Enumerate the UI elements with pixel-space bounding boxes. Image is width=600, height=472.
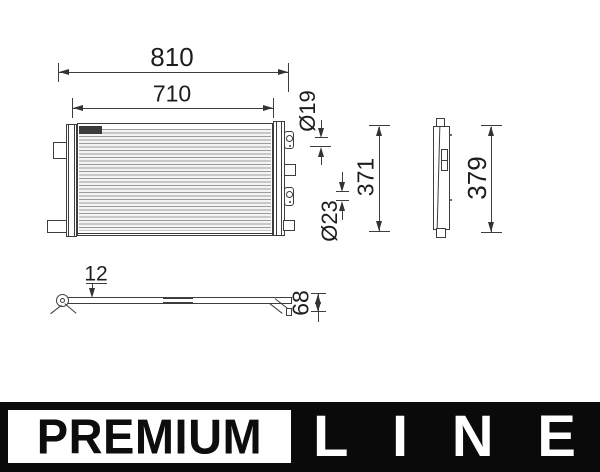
dim-810-label: 810 [150,44,193,70]
arrow-left-icon [73,105,83,111]
line-letter-l: L [313,408,348,466]
bracket-middle [284,164,296,176]
core-fin-hatching [79,129,271,231]
top-view-bar-segment [163,298,193,303]
dim-379-tick-bottom [481,232,502,233]
dim-810-line [59,72,288,73]
line-letter-n: N [452,408,494,466]
left-bracket-diagonal-a [50,305,62,314]
premium-logo-box: PREMIUM [8,410,291,463]
dim-12-underline [86,283,107,284]
side-bracket-midline [442,160,447,161]
dim-810-ext-right [288,63,289,92]
dim-371-line [379,127,380,231]
dim-68-tick-top [311,293,326,294]
dim-19-tick-top [315,137,328,138]
dim-19-label: Ø19 [297,90,319,132]
tank-inner-line-left [276,122,277,235]
port-hole-top [286,135,293,142]
arrow-right-icon [263,105,273,111]
side-pin-bottom [450,199,452,201]
drier-inner-line-right [74,125,75,236]
premium-line-logo: PREMIUM L I N E [0,402,600,472]
part-label-block [79,126,102,134]
dim-379-line [491,127,492,232]
dim-810-ext-left [58,63,59,82]
dim-710-line [73,108,273,109]
dim-19-line-bottom [321,155,322,165]
line-logo-box: L I N E [300,402,600,472]
line-letter-i: I [392,408,408,466]
arrow-up-icon [488,126,494,136]
side-pin-top [450,134,452,136]
technical-drawing-page: 810 710 [0,0,600,472]
arrow-down-icon [89,288,95,298]
mount-tab-bottom-left [47,220,67,233]
dim-12-label: 12 [84,264,107,285]
side-tab-bottom [436,228,446,238]
arrow-left-icon [59,69,69,75]
dim-371-tick-bottom [369,231,390,232]
dim-379-tick-top [481,125,502,126]
dim-23-line-bottom [342,209,343,220]
dim-68-label: 68 [290,290,313,316]
dim-710-ext-left [72,98,73,118]
mount-tab-top-left [53,142,67,159]
tank-inner-line-right [281,122,282,235]
premium-logo-text: PREMIUM [37,412,262,461]
dim-23-tick-top [336,191,349,192]
port-pin-top [289,145,291,147]
arrow-up-icon [376,126,382,136]
arrow-right-icon [278,69,288,75]
line-letter-e: E [537,408,576,466]
side-body [433,126,450,230]
dim-371-label: 371 [355,158,378,196]
drier-inner-line-left [68,125,69,236]
arrow-down-icon [376,221,382,231]
mount-tab-bottom-right [283,220,295,231]
arrow-down-icon [488,222,494,232]
dim-379-label: 379 [464,156,490,199]
dim-68-tick-bottom [311,311,326,312]
port-hole-bottom [286,191,293,198]
dim-371-tick-top [369,125,390,126]
right-bracket-diagonal-b [269,303,282,314]
dim-710-ext-right [273,98,274,118]
port-pin-bottom [289,201,291,203]
left-bracket-diagonal-b [64,303,76,313]
core-bottom-inner-line [78,233,272,234]
dim-710-label: 710 [153,83,191,106]
